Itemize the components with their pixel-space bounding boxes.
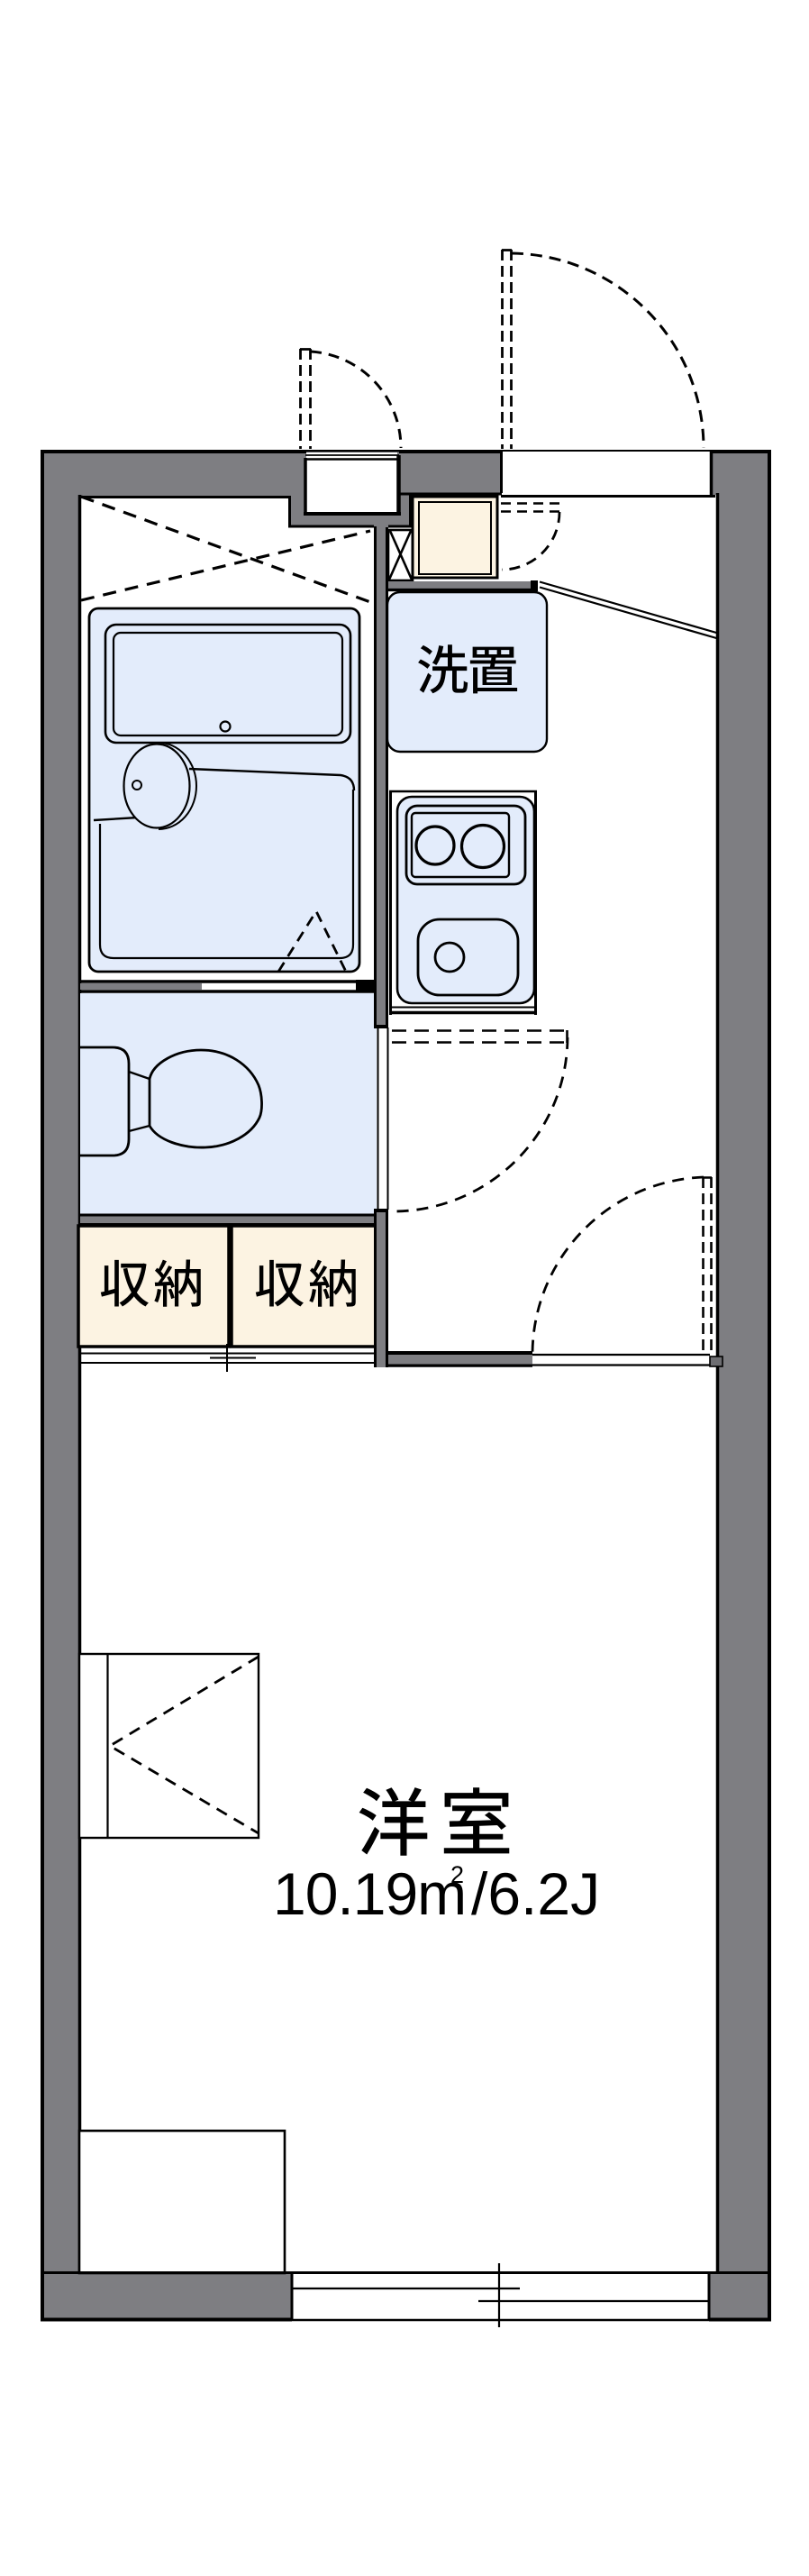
- svg-text:10.19m: 10.19m: [273, 1860, 466, 1927]
- svg-text:/6.2J: /6.2J: [471, 1860, 600, 1927]
- svg-text:2: 2: [450, 1861, 464, 1888]
